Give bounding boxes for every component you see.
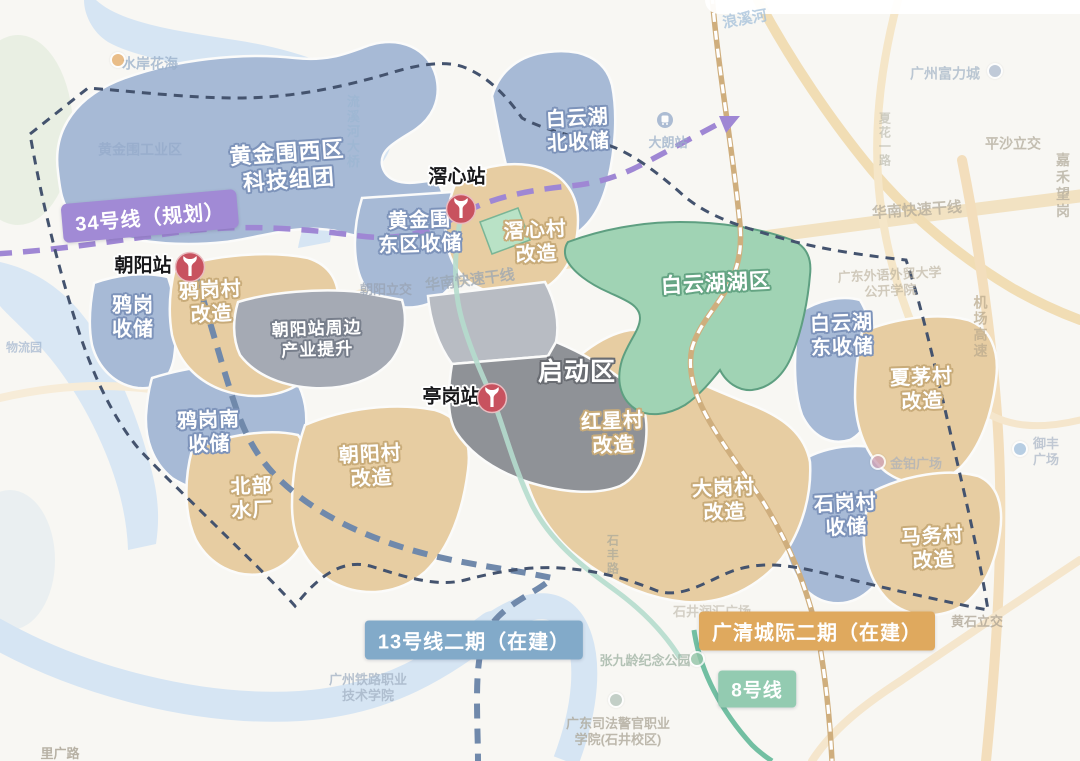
top-edge-artifact [705,0,1080,14]
planning-map: 水岸花海 浪溪河 黄金围工业区 流溪河大桥 朝阳立交 华南快速干线 华南快速干线… [0,0,1080,761]
metro-station-icon-chaoyang [174,251,206,283]
poi-pin [987,63,1003,79]
badge-line13: 13号线二期（在建） [365,621,583,660]
metro-station-icon-jiaoxin [445,193,477,225]
train-icon-wheel [662,123,664,125]
region-mawu-shape [864,473,1001,615]
region-chaoyang-village-shape [292,406,469,592]
badge-guangqing-intercity: 广清城际二期（在建） [699,612,935,651]
badge-line8: 8号线 [718,671,796,708]
park-shape [0,490,55,630]
poi-pin [110,52,126,68]
region-chaoyang-industry-shape [234,290,405,388]
poi-pin [689,651,705,667]
road-ne-2 [877,0,914,330]
train-station-icon [656,111,674,129]
poi-pin [870,454,886,470]
planning-regions [57,42,1001,615]
train-icon-wheel [666,123,668,125]
poi-pin [608,692,624,708]
metro-station-icon-tinggang [476,382,508,414]
region-launch-upper-shape [428,282,557,364]
poi-pin [1012,441,1028,457]
train-icon-body [662,116,669,123]
